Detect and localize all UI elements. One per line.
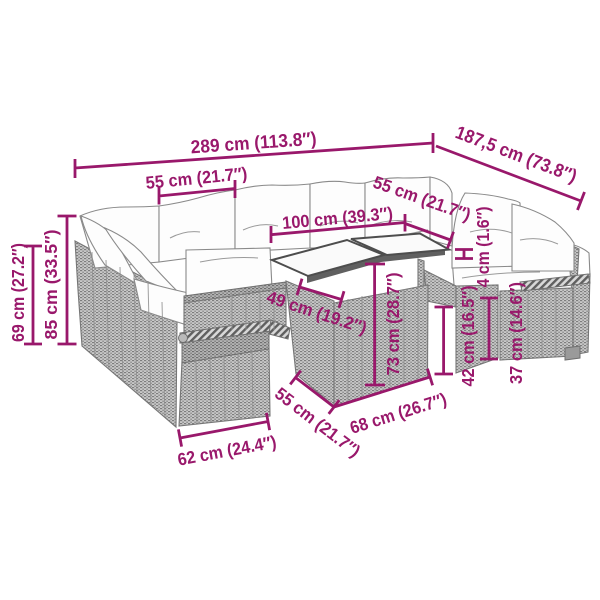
svg-text:42 cm (16.5″): 42 cm (16.5″) (458, 286, 478, 387)
svg-text:4 cm (1.6″): 4 cm (1.6″) (473, 207, 493, 288)
svg-text:85 cm (33.5″): 85 cm (33.5″) (41, 230, 61, 340)
svg-text:73 cm (28.7″): 73 cm (28.7″) (383, 273, 403, 376)
svg-text:69 cm (27.2″): 69 cm (27.2″) (8, 243, 28, 342)
svg-text:37 cm (14.6″): 37 cm (14.6″) (506, 282, 526, 384)
